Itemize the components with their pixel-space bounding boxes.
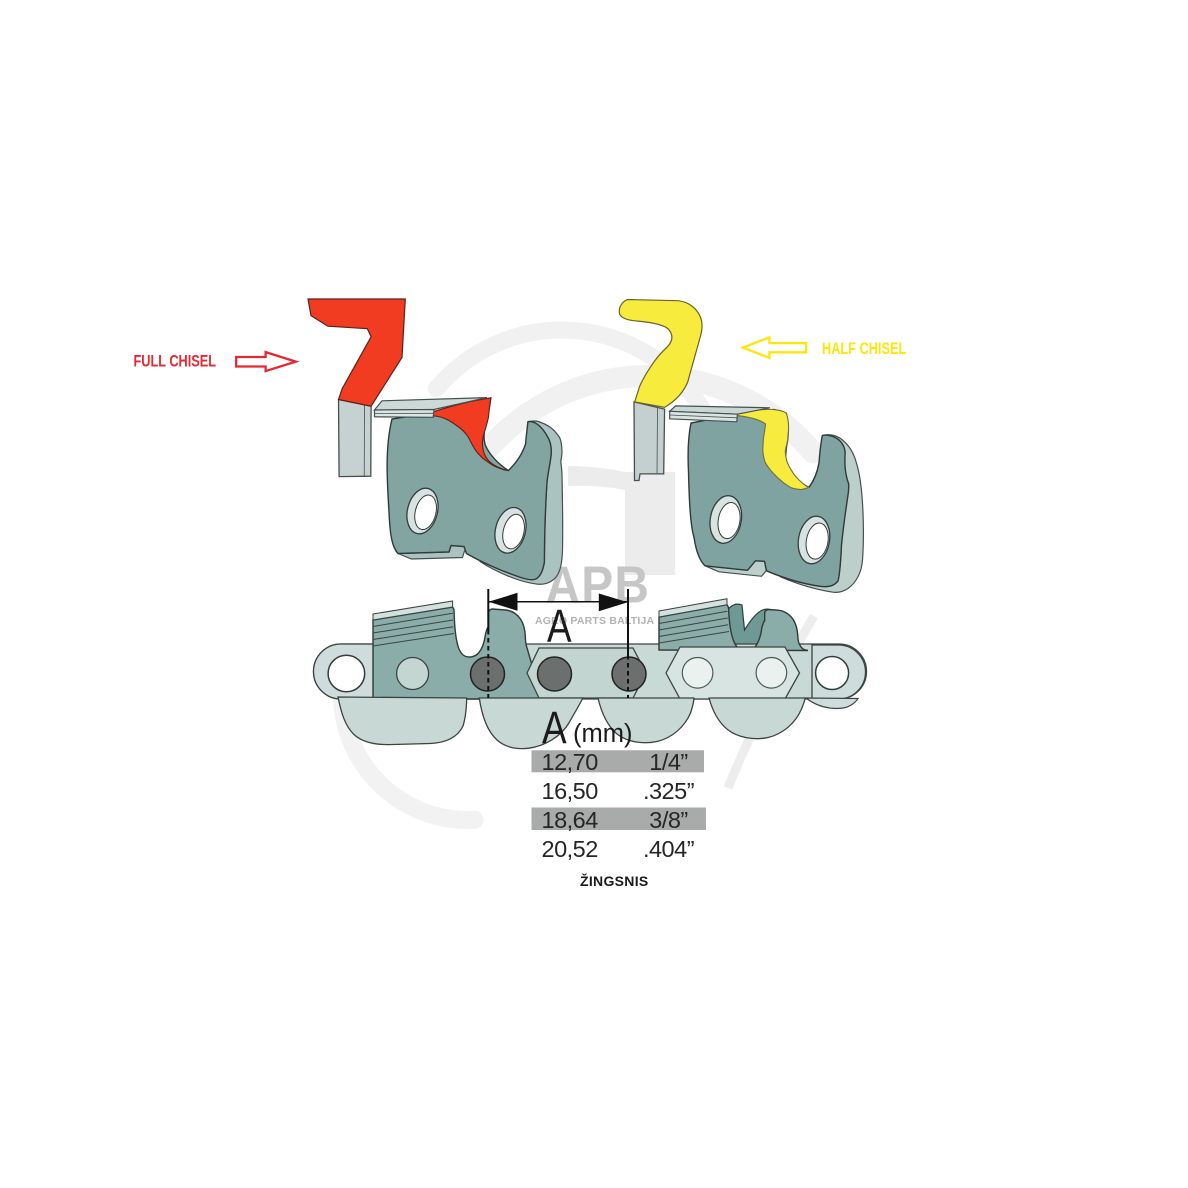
svg-text:HALF CHISEL: HALF CHISEL xyxy=(822,339,906,358)
svg-text:1/4”: 1/4” xyxy=(649,749,688,775)
svg-text:.325”: .325” xyxy=(643,778,694,804)
svg-text:.404”: .404” xyxy=(643,836,694,862)
svg-text:18,64: 18,64 xyxy=(542,807,599,833)
svg-text:12,70: 12,70 xyxy=(542,749,599,775)
svg-text:16,50: 16,50 xyxy=(542,778,599,804)
svg-text:20,52: 20,52 xyxy=(542,836,598,862)
svg-text:A: A xyxy=(547,600,572,652)
svg-text:A: A xyxy=(542,703,567,753)
svg-text:FULL CHISEL: FULL CHISEL xyxy=(134,352,217,371)
svg-text:ŽINGSNIS: ŽINGSNIS xyxy=(580,872,649,889)
svg-text:3/8”: 3/8” xyxy=(649,807,688,833)
svg-text:(mm): (mm) xyxy=(573,720,632,748)
